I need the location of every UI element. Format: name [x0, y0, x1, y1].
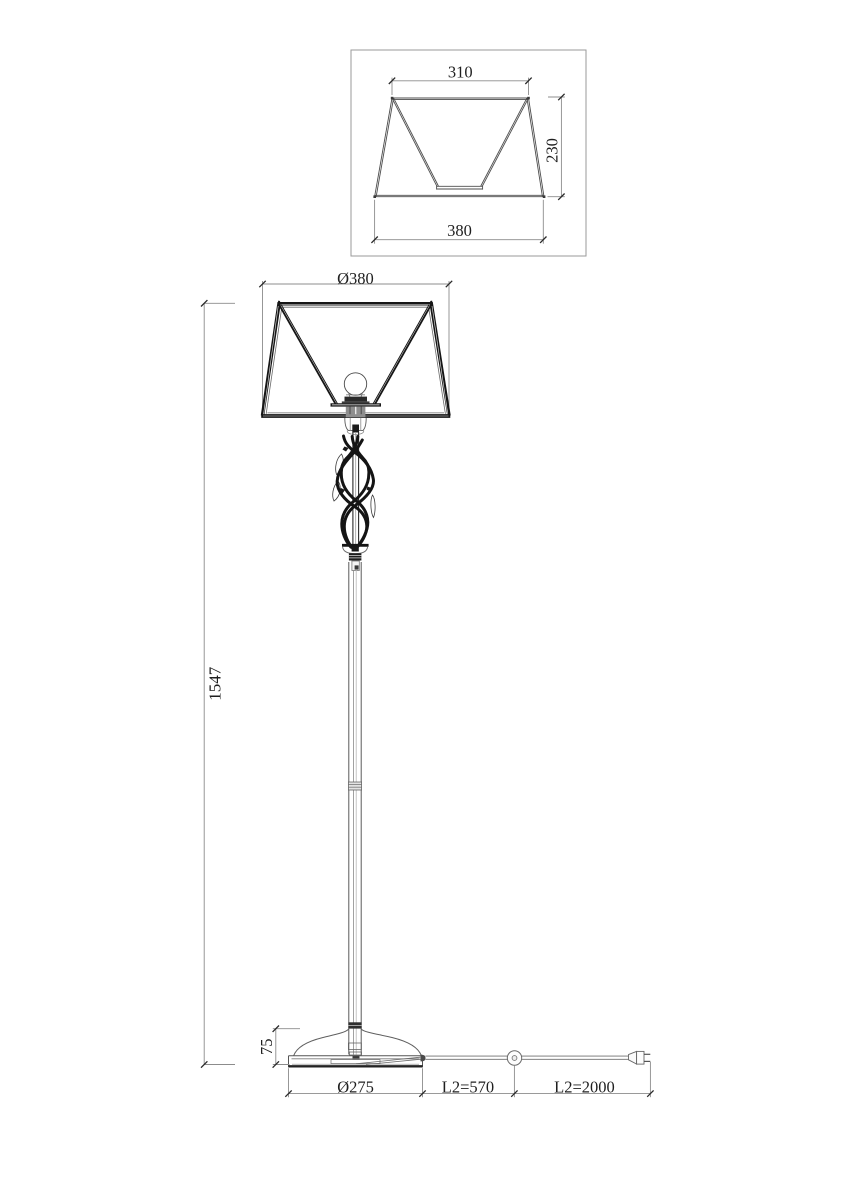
svg-text:Ø380: Ø380 — [337, 269, 374, 288]
svg-text:380: 380 — [447, 221, 472, 240]
svg-text:Ø275: Ø275 — [337, 1078, 374, 1097]
svg-text:L2=570: L2=570 — [442, 1078, 494, 1097]
svg-text:310: 310 — [448, 62, 473, 81]
svg-text:75: 75 — [257, 1039, 276, 1056]
svg-text:L2=2000: L2=2000 — [554, 1078, 615, 1097]
svg-text:1547: 1547 — [206, 666, 225, 701]
svg-text:230: 230 — [542, 138, 561, 163]
